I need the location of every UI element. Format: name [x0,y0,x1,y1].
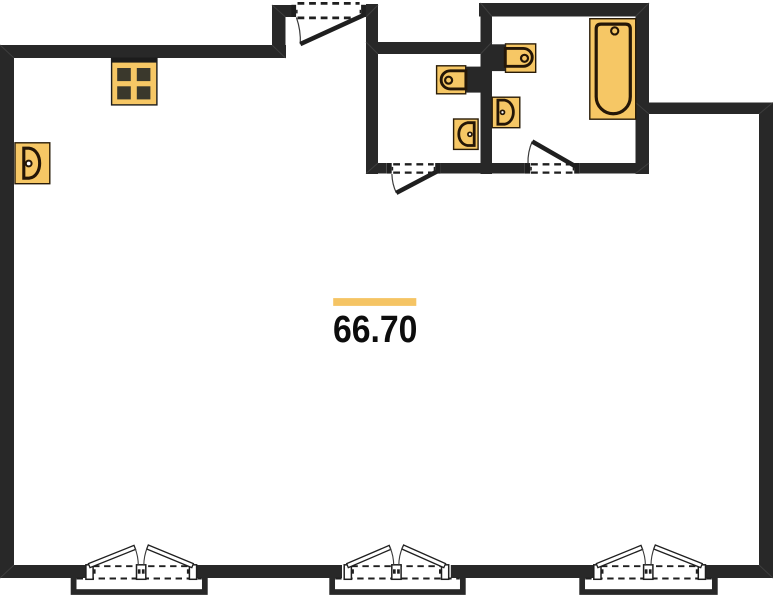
svg-text:66.70: 66.70 [333,309,418,351]
